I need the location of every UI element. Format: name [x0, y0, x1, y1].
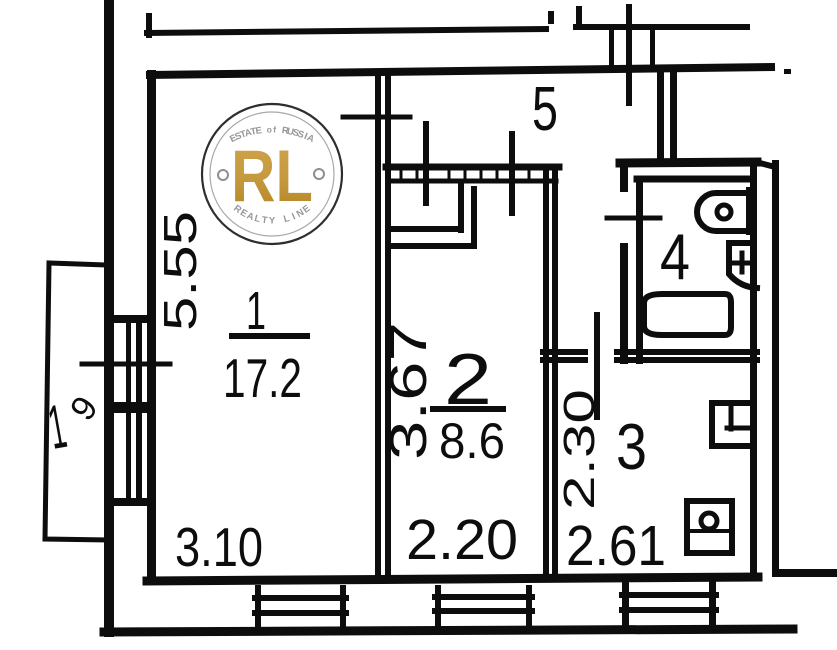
svg-text:RL: RL — [231, 136, 313, 217]
svg-text:Y: Y — [269, 216, 276, 227]
svg-text:1: 1 — [246, 281, 266, 341]
svg-text:3.67: 3.67 — [380, 322, 438, 460]
svg-text:3: 3 — [616, 410, 647, 483]
svg-text:o: o — [267, 124, 272, 134]
svg-text:4: 4 — [660, 220, 690, 293]
svg-text:5: 5 — [532, 75, 558, 144]
svg-text:f: f — [273, 124, 276, 134]
svg-text:2.30: 2.30 — [555, 389, 604, 510]
svg-text:2.20: 2.20 — [406, 508, 518, 572]
svg-text:8.6: 8.6 — [439, 413, 505, 469]
svg-text:5.55: 5.55 — [154, 211, 206, 331]
svg-text:17.2: 17.2 — [223, 347, 302, 409]
svg-text:3.10: 3.10 — [175, 516, 263, 578]
svg-text:2.61: 2.61 — [566, 514, 666, 578]
